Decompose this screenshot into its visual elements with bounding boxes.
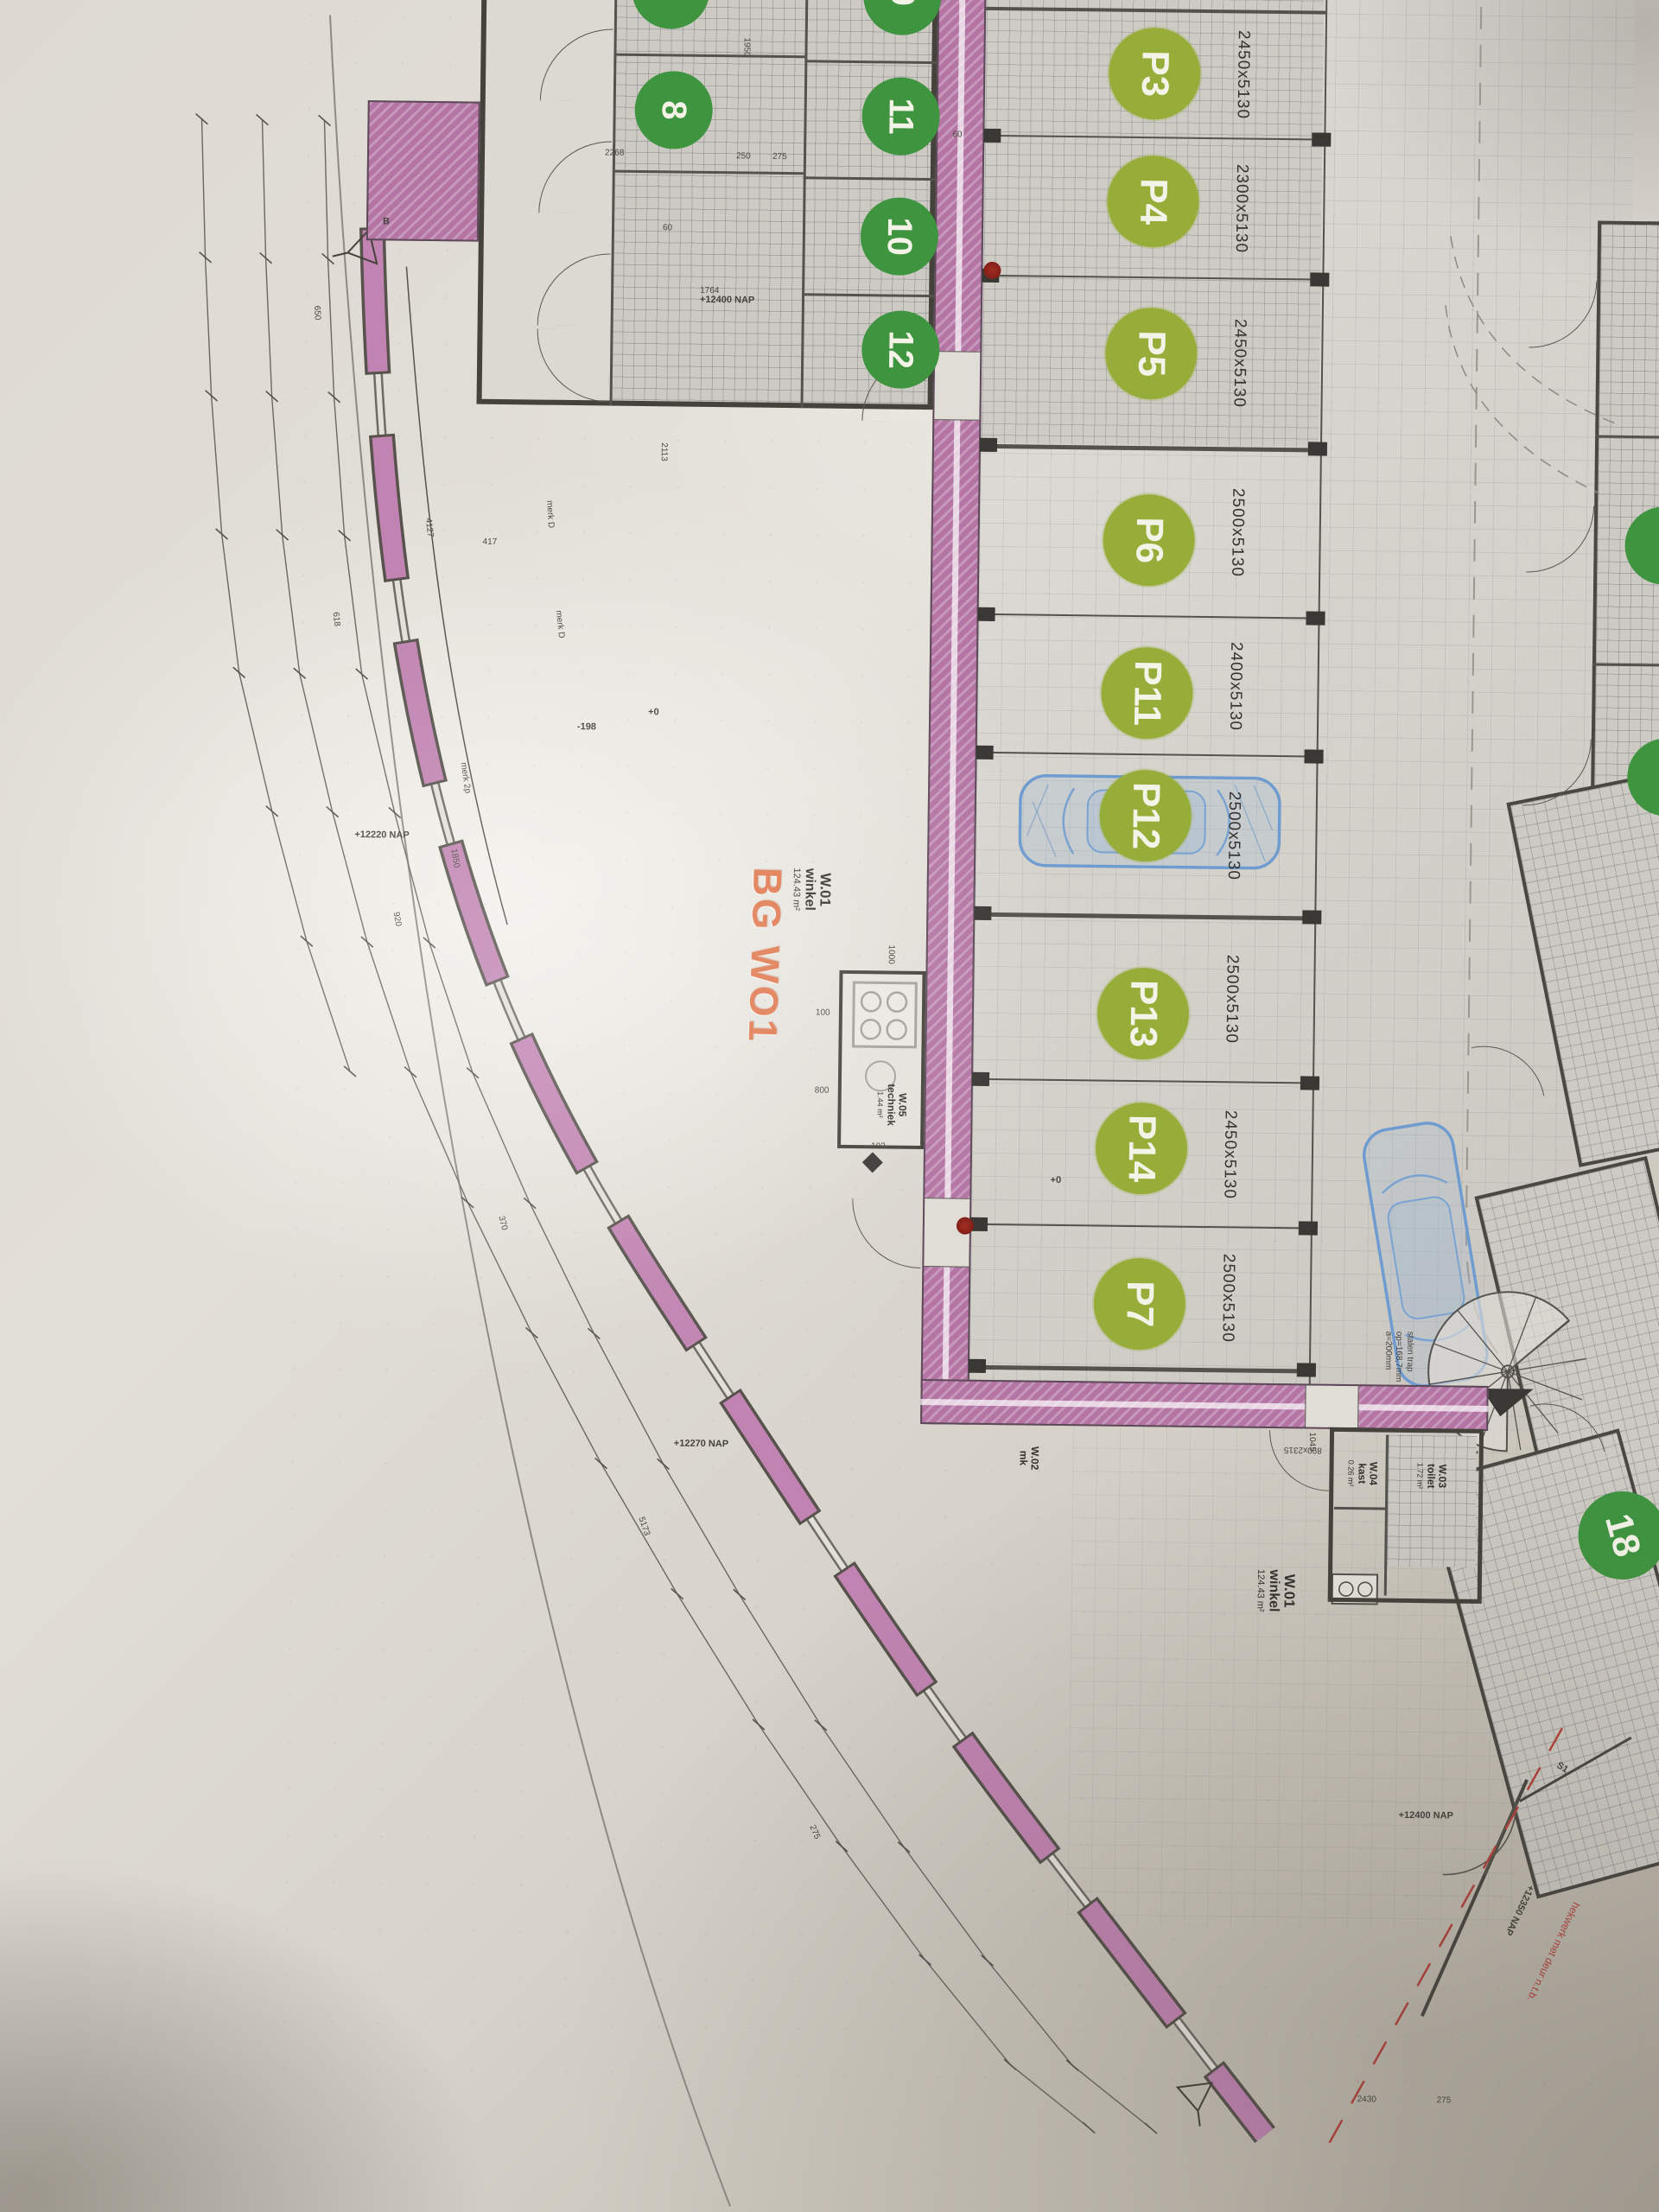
- dim-label: 1764: [700, 286, 719, 296]
- parking-space-size: 2300x5130: [1230, 145, 1251, 271]
- dim-label: 60: [952, 130, 962, 139]
- column: [1304, 749, 1323, 763]
- column: [977, 607, 995, 621]
- level-label: +12400 NAP: [700, 295, 754, 306]
- section-b-label: B: [383, 216, 390, 226]
- parking-space-size: 2500x5130: [1221, 923, 1242, 1075]
- parking-space-size: 2450x5130: [1229, 285, 1249, 441]
- dim-label: 800: [815, 1085, 829, 1095]
- parking-space-size: 2500x5130: [1223, 762, 1243, 909]
- stair-note: stalen trap op=168,7mm a=200mm: [1382, 1332, 1414, 1382]
- parking-space-size: 2450x5130: [1219, 1089, 1240, 1220]
- room-label-winkel-2: W.01 winkel 124.43 m²: [1255, 1526, 1299, 1656]
- column: [1299, 1221, 1318, 1235]
- parking-space-size: 2500x5130: [1217, 1234, 1238, 1362]
- level-label: +12220 NAP: [354, 829, 409, 841]
- room-label-kast: W.04 kast 0.26 m²: [1346, 1443, 1379, 1503]
- dim-label: 890x2315: [1284, 1445, 1322, 1455]
- parking-space-size: 2400x5130: [1225, 624, 1246, 748]
- dim-label: 650: [312, 305, 322, 320]
- plan-stamp: BG WO1: [740, 867, 791, 1045]
- room-label-toilet: W.03 toilet 1.72 m²: [1415, 1446, 1448, 1506]
- dim-label: 4127: [423, 518, 435, 537]
- floor-plan: P32450x5130P42300x5130P52450x5130P62500x…: [0, 3, 1635, 2212]
- level-label: +0: [1051, 1175, 1062, 1185]
- dim-label: 275: [772, 152, 787, 162]
- level-label: -198: [577, 721, 596, 732]
- column: [1308, 442, 1327, 455]
- dim-label: 2268: [605, 148, 624, 157]
- room-label-winkel: W.01 winkel 124.43 m²: [791, 824, 835, 955]
- dim-label: 100: [816, 1008, 830, 1018]
- column: [983, 129, 1001, 143]
- level-label: +12400 NAP: [1399, 1810, 1453, 1821]
- column: [1297, 1363, 1316, 1376]
- dim-label: 60: [663, 223, 672, 232]
- column: [980, 438, 997, 452]
- dim-label: 1000: [887, 944, 896, 963]
- drain-point: [983, 262, 1001, 279]
- column: [976, 746, 994, 760]
- level-label: +0: [648, 707, 659, 717]
- dim-label: 250: [736, 151, 751, 161]
- parking-space-size: 2450x5130: [1232, 17, 1253, 131]
- drain-point: [957, 1217, 974, 1235]
- dim-label: 2430: [1357, 2094, 1376, 2104]
- dim-label: 1950: [741, 37, 751, 56]
- floor-plan-photo: P32450x5130P42300x5130P52450x5130P62500x…: [0, 0, 1659, 2212]
- dim-label: 618: [331, 612, 342, 627]
- room-label-mk: W.02 mk: [1016, 1432, 1040, 1484]
- column: [974, 906, 991, 920]
- column: [969, 1359, 986, 1373]
- room-label-techniek: W.05 techniek 1.44 m²: [875, 1065, 908, 1143]
- level-label: +12270 NAP: [674, 1439, 728, 1450]
- dim-label: 417: [482, 537, 497, 547]
- column: [1312, 132, 1331, 146]
- column: [1302, 910, 1321, 924]
- column: [972, 1072, 989, 1086]
- column: [1310, 272, 1329, 286]
- parking-space-size: 2500x5130: [1227, 454, 1248, 610]
- dim-label: 275: [1437, 2095, 1452, 2105]
- merk-d-label: merk D: [544, 500, 556, 529]
- column: [1306, 611, 1325, 625]
- column: [1300, 1076, 1319, 1090]
- dim-label: 2113: [659, 442, 669, 461]
